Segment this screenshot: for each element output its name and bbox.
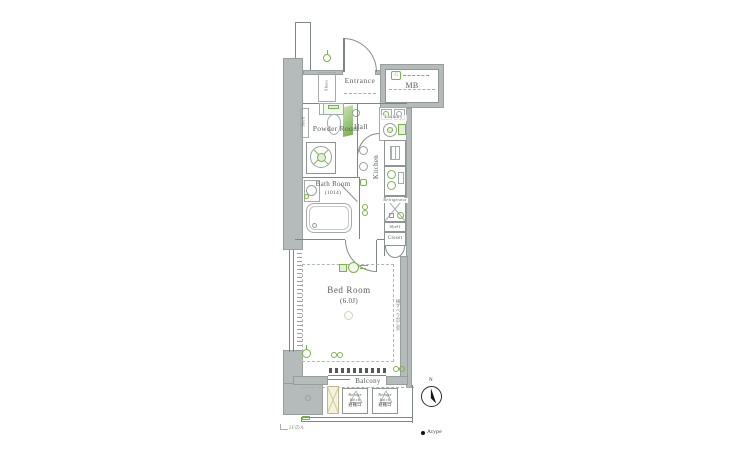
room-label-balcony: Balcony: [350, 377, 386, 385]
balcony-rail-line: [301, 421, 413, 422]
room-label-closet: Closet: [384, 236, 406, 242]
shelf-top-label: Shelf: [384, 224, 406, 229]
faucet-icon: [387, 127, 393, 133]
shower-icon: [304, 194, 309, 199]
shelf-side-label: Shelf: [302, 106, 307, 136]
gas-meter-icon: G: [391, 71, 401, 80]
room-label-laundry: Laundry: [380, 115, 407, 121]
window-line: [293, 250, 294, 352]
compass-icon: [421, 386, 442, 407]
compass-needle: [424, 388, 439, 405]
entrance-door-leaf: [343, 38, 345, 72]
type-legend-bullet: [421, 431, 425, 435]
room-label-bath: Bath Room: [310, 180, 356, 188]
room-label-kitchen: Kitchen: [372, 147, 380, 187]
downlight-icon: [359, 162, 368, 171]
downlight-icon: [359, 146, 368, 155]
curtain-box-hatch: [297, 253, 302, 348]
ceiling-light-stem: [327, 50, 328, 54]
ceiling-light-icon: [323, 54, 331, 62]
wall-segment: [295, 22, 311, 23]
outlet-icon: [389, 213, 394, 218]
bedroom-size-label: (6.0J): [332, 297, 366, 305]
entrance-step-line: [344, 93, 376, 94]
partition-line: [377, 239, 385, 240]
toilet-lid-icon: [328, 105, 339, 109]
window-line: [328, 375, 386, 376]
window-line: [289, 250, 290, 352]
outlet-stem: [306, 345, 307, 349]
bath-size-label: (1014): [316, 190, 350, 196]
drain-icon: [312, 223, 317, 228]
entrance-door-arc: [343, 38, 377, 72]
room-label-bedroom: Bed Room: [324, 285, 374, 295]
stove-panel-icon: [398, 172, 404, 184]
washer-center-icon: [317, 153, 326, 162]
refuge-hatch-left: △ Refuge hatch 避難口: [342, 388, 368, 414]
wall-segment: [386, 376, 408, 385]
light-leader-line: [360, 268, 366, 269]
burner-icon: [387, 181, 396, 190]
ceiling-light-icon: [348, 262, 359, 273]
light-leader-line: [360, 265, 368, 266]
wall-segment: [293, 376, 328, 385]
outlet-icon: [302, 349, 311, 358]
room-label-entrance: Entrance: [340, 77, 380, 86]
outlet-icon: [397, 212, 404, 219]
balcony-rail-line: [301, 417, 413, 418]
outlet-icon: [362, 210, 368, 216]
wall-segment: [310, 22, 311, 71]
closet-door-arc: [385, 246, 395, 258]
burner-icon: [387, 170, 396, 179]
refuge-hatch-sub-label: 避難口: [373, 403, 397, 408]
compass-n-label: N: [426, 378, 436, 384]
floor-plan: G MB Entrance Shoes PS Hall Laundry Shel…: [0, 0, 730, 470]
window-note-label: 横すべり出し窓: [393, 292, 401, 338]
drain-icon: [305, 395, 311, 401]
gas-meter-label: G: [392, 73, 401, 79]
partition-line: [303, 177, 360, 178]
stairs-leader-line: [280, 429, 288, 430]
switch-icon: [360, 179, 367, 186]
room-label-mb: MB: [398, 81, 426, 90]
wall-segment: [295, 22, 296, 60]
stairs-note-label: 2FのA: [289, 426, 319, 432]
wall-segment: [400, 256, 408, 378]
ladder-hatch-icon: [327, 386, 339, 414]
sink-grill-icon: [390, 146, 400, 160]
refuge-hatch-sub-label: 避難口: [343, 403, 367, 408]
type-legend-label: Atype: [427, 429, 453, 435]
downlight-icon: [352, 109, 360, 117]
partition-line: [295, 239, 345, 240]
window-sill-hatch: [329, 368, 386, 373]
storage-icon: [398, 124, 406, 135]
meter-leader-line: [403, 75, 429, 76]
faucet-icon: [302, 416, 310, 420]
ceiling-light-icon: [339, 264, 347, 272]
partition-line: [357, 104, 358, 178]
partition-line: [359, 177, 360, 239]
downlight-icon: [344, 311, 353, 320]
shoes-label: Shoes: [325, 71, 330, 99]
room-label-powder: Powder Room: [312, 118, 360, 139]
outlet-icon: [337, 352, 343, 358]
room-label-refrigerator: Refrigerator: [382, 198, 408, 203]
refuge-hatch-right: △ Refuge hatch 避難口: [372, 388, 398, 414]
wall-segment: [283, 58, 303, 250]
outlet-icon: [399, 366, 405, 372]
